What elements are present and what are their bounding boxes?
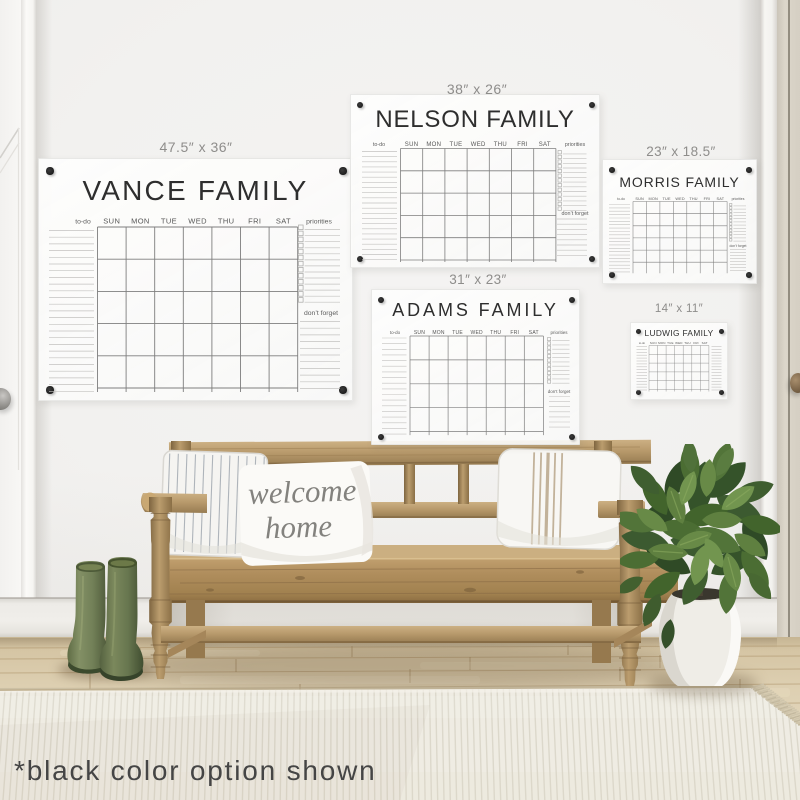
svg-text:SAT: SAT	[529, 330, 539, 336]
svg-text:don’t forget: don’t forget	[562, 211, 589, 217]
svg-text:TUE: TUE	[450, 142, 463, 148]
svg-text:MON: MON	[658, 341, 665, 345]
svg-text:don’t forget: don’t forget	[730, 244, 747, 248]
svg-text:SAT: SAT	[276, 217, 291, 226]
svg-text:SUN: SUN	[405, 142, 419, 148]
svg-text:WED: WED	[675, 341, 683, 345]
svg-text:FRI: FRI	[248, 217, 261, 226]
svg-text:MON: MON	[432, 330, 445, 336]
svg-text:TUE: TUE	[667, 341, 673, 345]
svg-text:FRI: FRI	[510, 330, 519, 336]
svg-text:don’t forget: don’t forget	[548, 389, 571, 394]
svg-text:priorities: priorities	[306, 219, 332, 226]
svg-text:TUE: TUE	[663, 197, 671, 201]
svg-text:SAT: SAT	[717, 197, 725, 201]
svg-text:TUE: TUE	[452, 330, 463, 336]
svg-text:TUE: TUE	[161, 217, 177, 226]
svg-text:SUN: SUN	[650, 341, 657, 345]
svg-text:THU: THU	[490, 330, 501, 336]
svg-text:MON: MON	[426, 142, 441, 148]
svg-text:to-do: to-do	[75, 219, 91, 226]
svg-text:welcome: welcome	[247, 472, 357, 511]
svg-text:WED: WED	[188, 217, 207, 226]
svg-text:SUN: SUN	[635, 197, 644, 201]
svg-text:to-do: to-do	[639, 341, 646, 345]
svg-text:SAT: SAT	[539, 142, 551, 148]
svg-text:WED: WED	[470, 330, 483, 336]
svg-text:MON: MON	[648, 197, 657, 201]
svg-text:SUN: SUN	[103, 217, 120, 226]
svg-text:home: home	[264, 508, 333, 545]
svg-text:to-do: to-do	[390, 330, 401, 335]
svg-text:FRI: FRI	[517, 142, 528, 148]
svg-text:WED: WED	[675, 197, 684, 201]
svg-text:FRI: FRI	[693, 341, 698, 345]
svg-text:THU: THU	[218, 217, 235, 226]
svg-text:MON: MON	[131, 217, 150, 226]
svg-text:priorities: priorities	[550, 330, 568, 335]
svg-text:SAT: SAT	[702, 341, 708, 345]
svg-text:FRI: FRI	[704, 197, 711, 201]
svg-text:THU: THU	[684, 341, 691, 345]
svg-text:THU: THU	[689, 197, 697, 201]
svg-text:SUN: SUN	[414, 330, 425, 336]
svg-text:WED: WED	[471, 142, 486, 148]
svg-text:don’t forget: don’t forget	[304, 310, 338, 317]
svg-text:THU: THU	[494, 142, 507, 148]
svg-text:to-do: to-do	[617, 197, 625, 201]
svg-text:to-do: to-do	[373, 142, 385, 148]
svg-text:priorities: priorities	[732, 197, 745, 201]
